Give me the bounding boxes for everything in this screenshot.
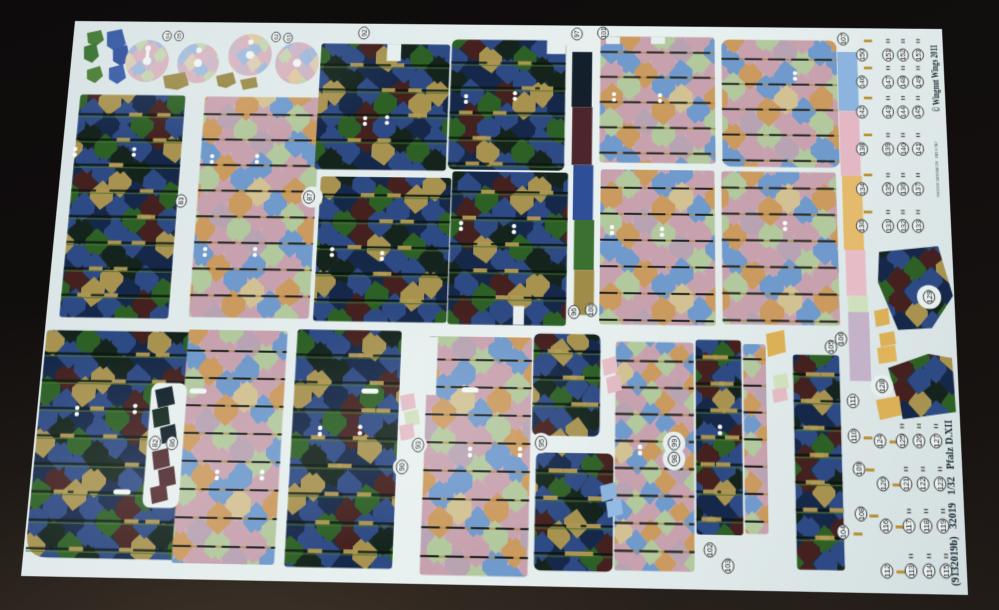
- svg-text:96: 96: [571, 308, 579, 316]
- svg-text:132: 132: [900, 220, 908, 232]
- svg-text:123: 123: [937, 477, 945, 490]
- svg-text:133: 133: [915, 220, 923, 232]
- svg-text:135: 135: [885, 183, 893, 195]
- svg-text:136: 136: [900, 183, 908, 195]
- svg-text:99: 99: [671, 438, 679, 447]
- svg-text:104: 104: [840, 525, 848, 538]
- svg-text:150: 150: [859, 49, 867, 60]
- svg-text:112: 112: [884, 564, 892, 577]
- svg-text:83: 83: [178, 197, 186, 205]
- svg-text:107: 107: [840, 33, 848, 44]
- svg-text:147: 147: [885, 76, 893, 88]
- svg-text:144: 144: [900, 106, 908, 118]
- svg-text:108: 108: [858, 507, 866, 520]
- svg-text:(9132019b) 32019 1/32 Pf: (9132019b) 32019 1/32 Pfalz D.XII: [943, 419, 962, 586]
- svg-text:102: 102: [707, 543, 715, 556]
- svg-text:151: 151: [885, 49, 893, 60]
- svg-text:130: 130: [859, 220, 867, 232]
- svg-text:117: 117: [906, 519, 914, 532]
- svg-text:122: 122: [920, 477, 928, 490]
- svg-text:128: 128: [879, 379, 887, 392]
- svg-text:134: 134: [859, 183, 867, 195]
- svg-text:153: 153: [915, 49, 923, 60]
- svg-text:111: 111: [850, 395, 858, 407]
- svg-text:100: 100: [588, 304, 596, 316]
- svg-text:152: 152: [900, 49, 908, 60]
- svg-text:PRINTED BY CARTOGRAF.COM MA: PRINTED BY CARTOGRAF.COM MADE IN ITALY: [934, 141, 941, 197]
- svg-text:131: 131: [885, 220, 893, 232]
- svg-text:103: 103: [725, 559, 733, 573]
- svg-text:118: 118: [923, 519, 931, 532]
- svg-text:120: 120: [880, 477, 888, 490]
- svg-text:97: 97: [574, 30, 581, 38]
- svg-text:105: 105: [828, 341, 836, 354]
- svg-text:148: 148: [900, 76, 908, 88]
- svg-text:129: 129: [926, 291, 934, 303]
- svg-text:143: 143: [885, 106, 893, 118]
- svg-text:© Wingnut Wings 2011: © Wingnut Wings 2011: [929, 45, 944, 112]
- svg-text:139: 139: [885, 143, 893, 155]
- svg-text:142: 142: [859, 106, 867, 118]
- svg-text:149: 149: [915, 76, 923, 88]
- svg-text:116: 116: [883, 519, 891, 532]
- svg-text:110: 110: [851, 430, 859, 442]
- svg-text:98: 98: [671, 454, 679, 463]
- svg-text:127: 127: [933, 434, 941, 447]
- svg-text:109: 109: [856, 462, 864, 475]
- svg-text:138: 138: [859, 143, 867, 155]
- svg-text:126: 126: [916, 434, 924, 447]
- svg-text:140: 140: [900, 143, 908, 155]
- svg-text:146: 146: [859, 76, 867, 88]
- svg-text:114: 114: [926, 564, 935, 577]
- svg-text:141: 141: [915, 143, 923, 155]
- svg-text:106: 106: [838, 333, 846, 346]
- svg-text:124: 124: [877, 434, 885, 447]
- svg-text:101: 101: [600, 27, 607, 38]
- svg-text:137: 137: [915, 183, 923, 195]
- svg-text:113: 113: [908, 564, 917, 577]
- svg-text:121: 121: [903, 477, 911, 490]
- svg-text:87: 87: [306, 193, 314, 201]
- svg-text:145: 145: [915, 106, 923, 118]
- svg-text:125: 125: [899, 434, 907, 447]
